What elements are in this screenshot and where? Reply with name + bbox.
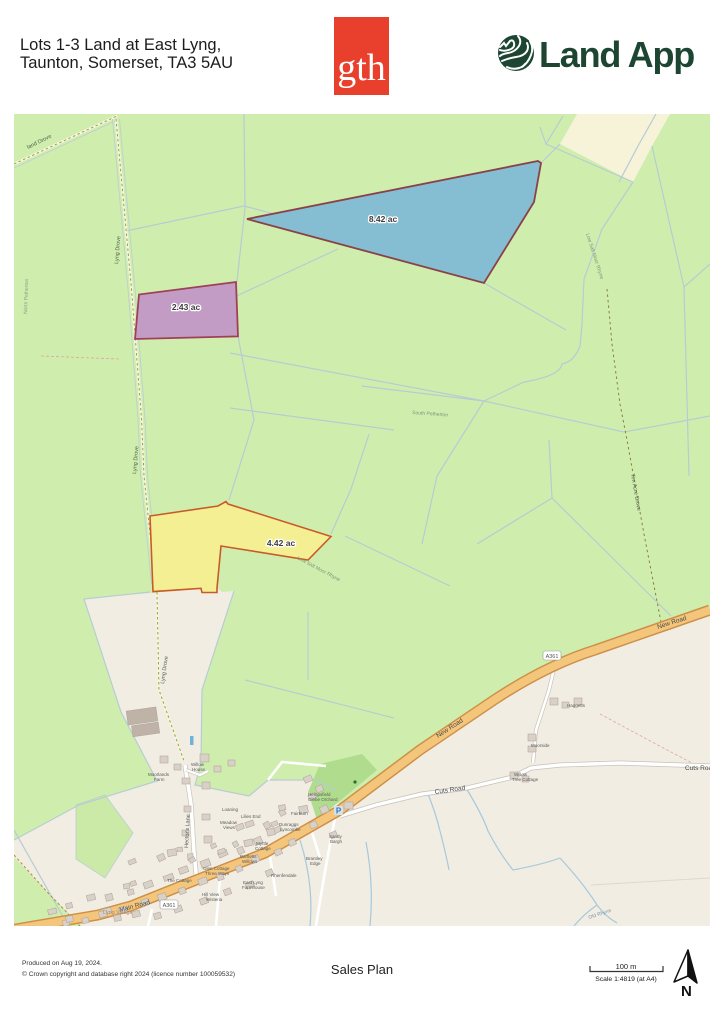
svg-text:North Petherton: North Petherton xyxy=(23,278,30,314)
svg-text:2.43 ac: 2.43 ac xyxy=(172,302,201,312)
svg-text:Land App: Land App xyxy=(539,34,694,74)
svg-text:The Cottage: The Cottage xyxy=(167,878,192,883)
svg-text:Lilies End: Lilies End xyxy=(241,814,261,819)
svg-text:Cuts Roa: Cuts Roa xyxy=(685,765,710,772)
svg-text:Tree Cottage: Tree Cottage xyxy=(512,777,539,782)
svg-text:100 m: 100 m xyxy=(616,962,637,971)
svg-text:N: N xyxy=(681,983,692,1000)
svg-text:Lyng Village: Lyng Village xyxy=(103,910,133,916)
svg-text:Edge: Edge xyxy=(310,861,321,866)
svg-text:4.42 ac: 4.42 ac xyxy=(267,538,296,548)
svg-text:Bargh: Bargh xyxy=(330,839,343,844)
svg-text:P: P xyxy=(336,807,342,816)
svg-text:A361: A361 xyxy=(163,903,176,909)
svg-text:Moorside: Moorside xyxy=(531,743,550,748)
svg-text:Wisteria: Wisteria xyxy=(206,897,223,902)
svg-text:Farmhouse: Farmhouse xyxy=(242,885,265,890)
svg-text:Farm: Farm xyxy=(154,777,165,782)
svg-text:Glebe Orchard: Glebe Orchard xyxy=(308,797,338,802)
svg-text:Three Ways: Three Ways xyxy=(205,871,230,876)
svg-text:Scale 1:4819 (at A4): Scale 1:4819 (at A4) xyxy=(595,976,657,983)
svg-text:Willows: Willows xyxy=(242,859,258,864)
svg-text:Cottage: Cottage xyxy=(255,846,271,851)
svg-text:Lyncombe: Lyncombe xyxy=(280,827,301,832)
svg-text:Haggetts: Haggetts xyxy=(567,703,586,708)
svg-text:Rhenfendale: Rhenfendale xyxy=(271,873,297,878)
svg-text:Fairburn: Fairburn xyxy=(291,811,308,816)
svg-text:Views: Views xyxy=(223,825,236,830)
svg-text:8.42 ac: 8.42 ac xyxy=(369,214,398,224)
svg-text:Loaning: Loaning xyxy=(222,807,239,812)
svg-text:A361: A361 xyxy=(546,654,559,660)
svg-text:House: House xyxy=(192,767,206,772)
